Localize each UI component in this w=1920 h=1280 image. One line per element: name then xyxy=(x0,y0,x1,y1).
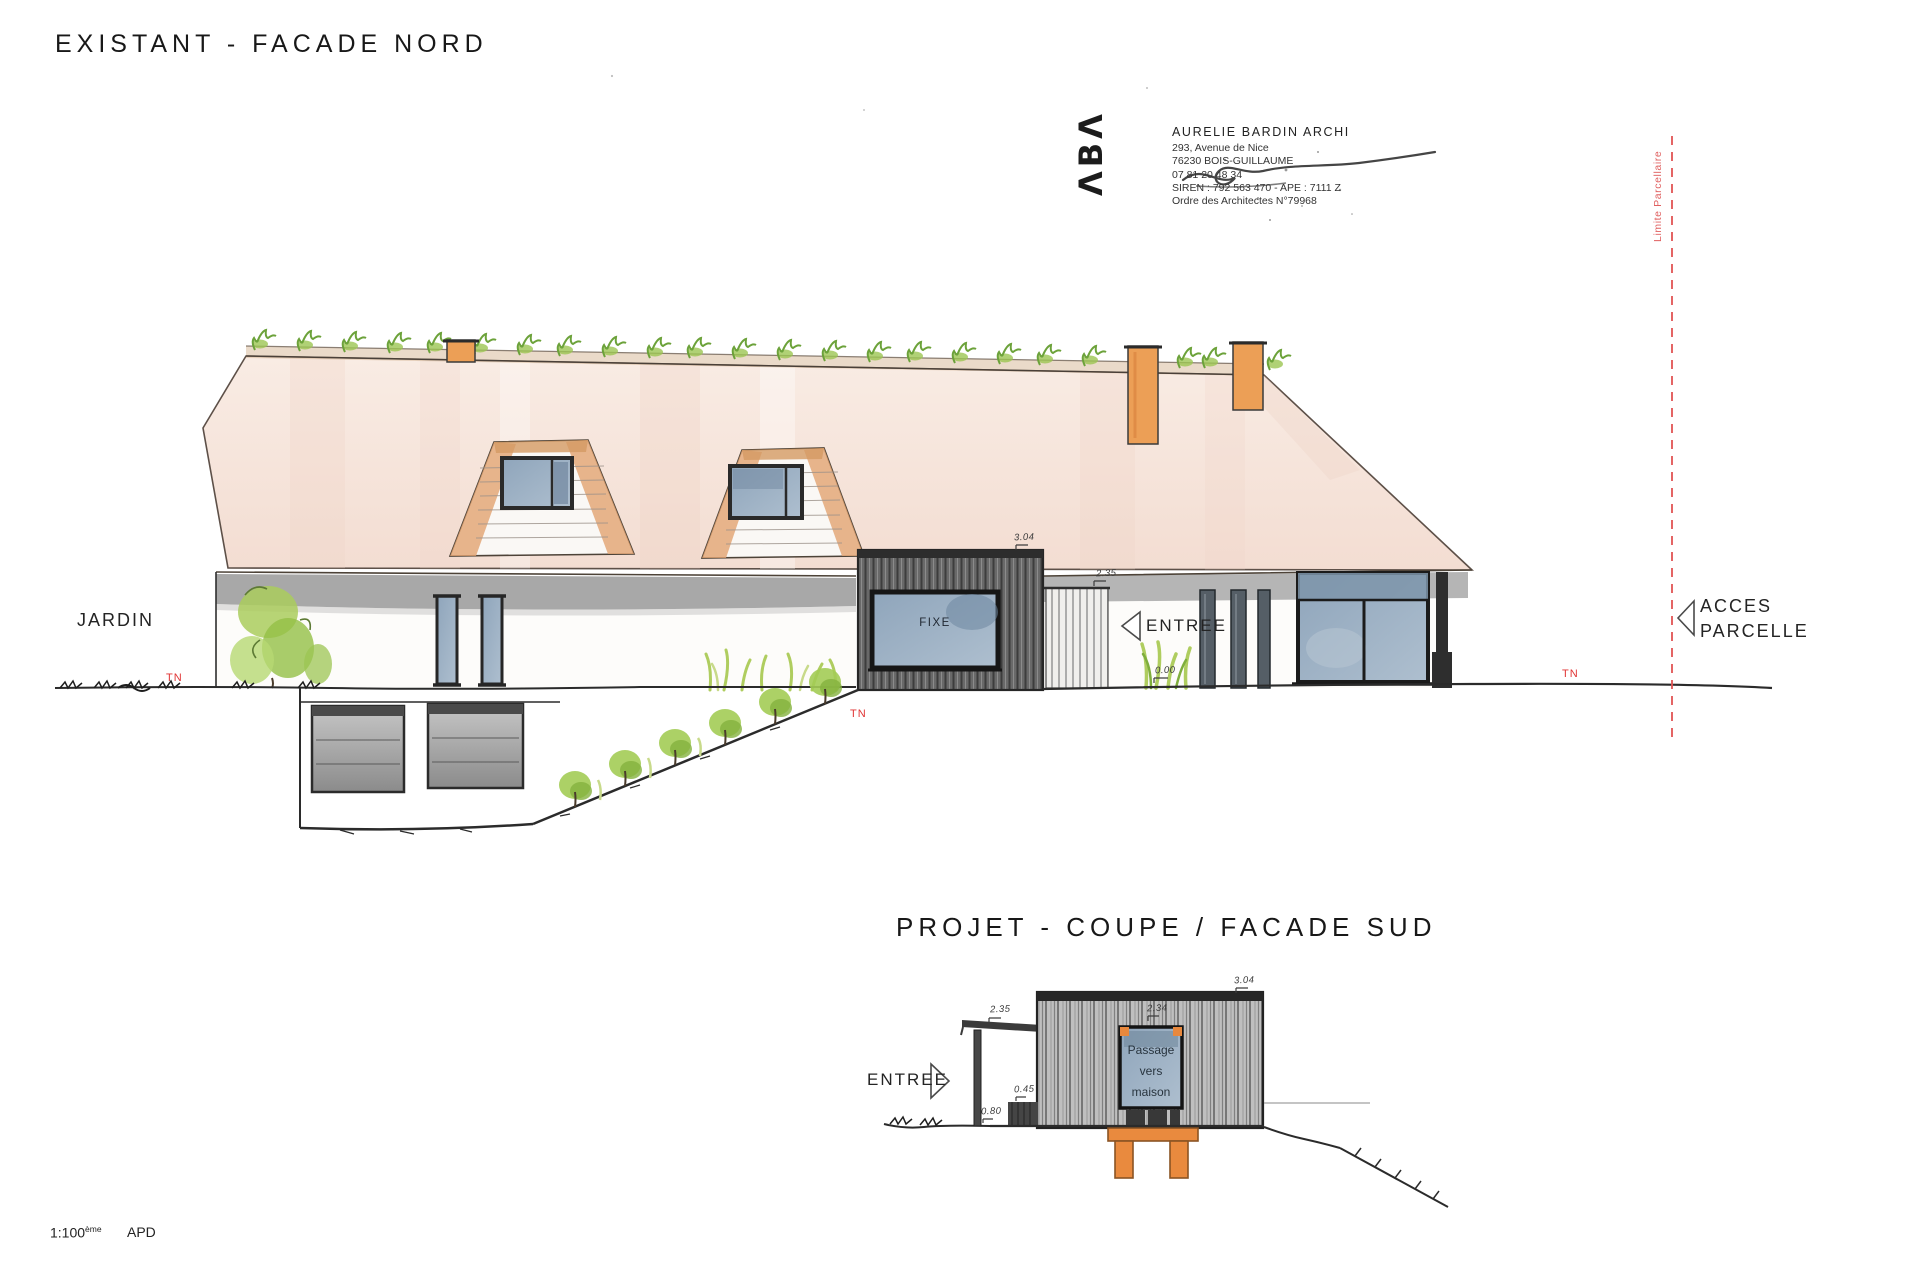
dim-main-box-height: 3.04 xyxy=(1014,532,1035,544)
scale-label: 1:100ème xyxy=(50,1224,102,1241)
facade-walls xyxy=(216,570,1472,688)
passage-line3: maison xyxy=(1120,1082,1182,1103)
drawing-sheet: ΛBΛ EXISTANT - FACADE NORD PROJET - COUP… xyxy=(0,0,1920,1280)
dim-section-canopy-height: 2.35 xyxy=(990,1004,1011,1016)
acces-parcelle-label: ACCES PARCELLE xyxy=(1700,594,1809,644)
dim-section-b: 0.80 xyxy=(981,1106,1002,1118)
scale-suffix: ème xyxy=(85,1224,102,1234)
garage-doors xyxy=(312,704,523,792)
north-elevation xyxy=(55,330,1772,834)
passage-line1: Passage xyxy=(1120,1040,1182,1061)
tn-label-mid: TN xyxy=(850,708,867,720)
dim-section-a: 0.45 xyxy=(1014,1084,1035,1096)
entree-label-section: ENTREE xyxy=(867,1070,948,1090)
architect-stamp: AURELIE BARDIN ARCHI 293, Avenue de Nice… xyxy=(1172,126,1350,208)
limite-parcellaire-label: Limite Parcellaire xyxy=(1652,151,1664,242)
acces-arrow xyxy=(1678,601,1694,635)
dim-main-ground-level: 0.00 xyxy=(1155,665,1176,677)
passage-line2: vers xyxy=(1120,1061,1182,1082)
phase-label: APD xyxy=(127,1224,156,1240)
dim-section-box-height: 3.04 xyxy=(1234,975,1255,987)
entree-label-main: ENTREE xyxy=(1146,616,1227,636)
passage-label: Passage vers maison xyxy=(1120,1040,1182,1103)
drawing-title-existing: EXISTANT - FACADE NORD xyxy=(55,30,488,59)
tn-label-left: TN xyxy=(166,672,183,684)
large-glazed-window xyxy=(1292,572,1452,688)
fixe-label: FIXE xyxy=(872,617,998,629)
stamp-phone: 07 81 20 48 34 xyxy=(1172,169,1350,182)
stamp-logo: ΛBΛ xyxy=(1072,110,1110,196)
canopy-post xyxy=(974,1030,981,1126)
orange-footing xyxy=(1108,1128,1198,1178)
stamp-address2: 76230 BOIS-GUILLAUME xyxy=(1172,155,1350,168)
scale-ratio: 1:100 xyxy=(50,1225,85,1241)
acces-line1: ACCES xyxy=(1700,594,1809,619)
tn-label-right: TN xyxy=(1562,668,1579,680)
dim-section-window-height: 2.34 xyxy=(1147,1003,1168,1015)
stamp-address1: 293, Avenue de Nice xyxy=(1172,142,1350,155)
stamp-name: AURELIE BARDIN ARCHI xyxy=(1172,126,1350,139)
dim-main-eave-height: 2.35 xyxy=(1096,568,1117,580)
elevation-artwork: ΛBΛ xyxy=(0,0,1920,1280)
drawing-title-project: PROJET - COUPE / FACADE SUD xyxy=(896,912,1436,943)
stamp-ordre: Ordre des Architectes N°79968 xyxy=(1172,195,1350,208)
acces-line2: PARCELLE xyxy=(1700,619,1809,644)
jardin-label: JARDIN xyxy=(77,610,154,631)
stamp-siren: SIREN : 792 563 470 - APE : 7111 Z xyxy=(1172,182,1350,195)
